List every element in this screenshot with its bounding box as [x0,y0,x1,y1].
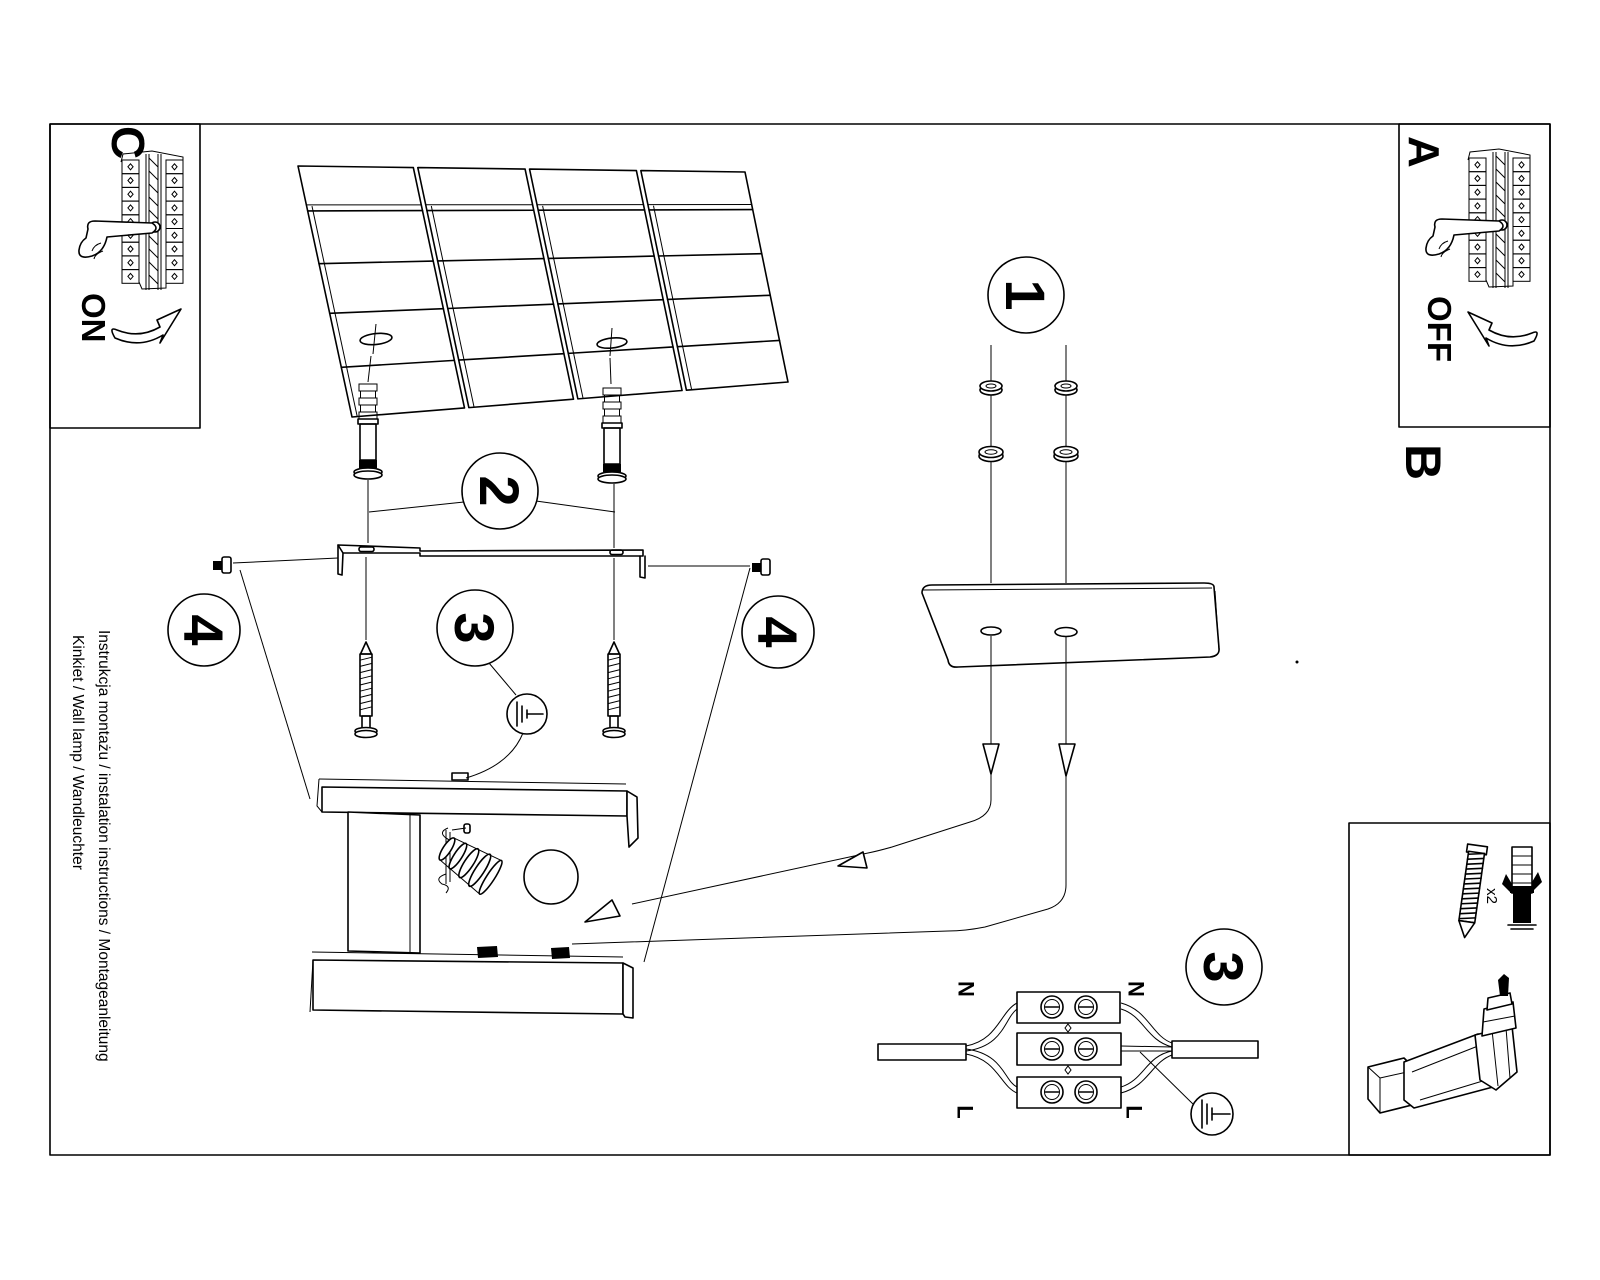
hardware-items: x2 [1455,844,1542,939]
breaker-module [166,160,183,174]
panel-a-state: OFF [1421,296,1458,362]
base-end [623,963,633,1018]
drill-icon [1368,974,1517,1113]
breaker-module [122,160,139,174]
breaker-module [122,201,139,215]
breaker-hand-icon [1426,219,1503,257]
wire-label-l: L [1121,1105,1146,1118]
curved-arrow-icon [112,309,181,343]
panel-a-label: A [1399,136,1448,168]
breaker-module [1469,268,1486,282]
arrowhead [983,744,999,774]
screw-icon [355,642,377,738]
drill-hole [360,332,393,346]
breaker-module [1469,185,1486,199]
washer-icon [1055,381,1077,395]
breaker-module [1513,254,1530,268]
washer-icon [1054,447,1078,462]
breaker-module [1513,268,1530,282]
base-bar [313,960,623,1014]
step-number: 4 [172,614,235,645]
washer-icon [980,381,1002,395]
breaker-module [1469,240,1486,254]
screw-icon [752,559,770,575]
panel-b-label: B [1395,444,1451,480]
terminal-post [551,947,570,959]
print-dot [1296,661,1299,664]
wires [572,636,1075,944]
canopy-end [627,791,638,847]
panel-c: C ON [75,126,183,343]
terminal-post [477,946,498,958]
breaker-icon [121,151,183,290]
breaker-module [122,242,139,256]
earth-tab [452,773,468,780]
earth-ground-icon [1191,1093,1233,1135]
drill-hole [597,336,628,349]
wire-label-l: L [952,1105,977,1118]
breaker-module [166,187,183,201]
breaker-module [1513,158,1530,172]
breaker-module [1513,199,1530,213]
earth-ground-icon [507,694,547,734]
wall-plug-icon [598,388,626,483]
panel-a-box [1399,124,1550,427]
caption-line-2: Kinkiet / Wall lamp / Wandleuchter [69,635,86,870]
step-4-right: 4 [644,559,814,962]
cable-left [878,1044,966,1060]
step-number: 3 [1192,951,1255,982]
wire-label-n: N [1123,981,1148,997]
breaker-module [166,229,183,243]
diamond-mark [1065,1024,1071,1032]
bulb-socket [433,830,505,896]
step-2-callout: 2 [369,453,615,529]
base-top-edge [312,952,623,957]
step-4-left: 4 [168,557,338,799]
caption-line-1: Instrukcja montażu / instalation instruc… [95,630,112,1062]
breaker-module [1513,213,1530,227]
breaker-module [122,270,139,284]
wire-label-n: N [953,981,978,997]
bracket-slot [359,547,374,552]
step-3-callout: 3 [437,590,547,780]
breaker-module [166,215,183,229]
wall-panel [641,171,788,391]
lamp-body [310,779,638,1018]
step-number: 2 [468,475,531,506]
breaker-module [166,201,183,215]
panel-a: A OFF [1399,136,1537,362]
lamp-column [348,812,420,953]
breaker-module [122,256,139,270]
step-number: 4 [746,616,809,647]
mounting-bracket [338,545,645,578]
breaker-hand-icon [79,221,156,259]
wall-plug-icon [354,384,382,479]
terminal-block [1017,1077,1121,1108]
breaker-module [1469,199,1486,213]
panel-c-state: ON [75,293,112,343]
washer-icon [979,447,1003,462]
step-number: 3 [443,612,506,643]
screw-icon [1455,844,1488,939]
bracket-slot [610,550,623,555]
screw-icon [603,642,625,738]
step-number: 1 [994,279,1057,310]
canopy-bar [322,787,627,816]
breaker-icon [1468,149,1530,288]
wall-plug-icon [1502,847,1542,929]
breaker-module [122,174,139,188]
quantity-label: x2 [1483,888,1500,904]
arrowhead [838,852,867,868]
breaker-module [1513,185,1530,199]
bulb-icon [524,850,578,904]
wall-panel [530,169,683,399]
cable-right [1172,1041,1258,1058]
screw-icon [213,557,231,573]
breaker-module [166,242,183,256]
step-1-callout: 1 [988,257,1064,333]
margin-caption: Instrukcja montażu / instalation instruc… [69,630,112,1062]
breaker-module [1513,227,1530,241]
wall-holes [360,324,628,384]
terminal-wiring: N N L L 3 [878,929,1262,1135]
arrowhead [585,900,620,922]
breaker-module [1469,172,1486,186]
terminal-block [1017,992,1120,1023]
breaker-module [1469,158,1486,172]
instruction-sheet: C ON A OFF B [0,0,1600,1280]
arrowhead [1059,744,1075,776]
wall-panel [298,166,464,417]
wall-panel [418,168,574,408]
canopy-top-edge [319,779,626,784]
wall-tiles [298,166,788,417]
terminal-block [1017,1033,1121,1065]
curved-arrow-icon [1468,312,1537,346]
diagram-canvas: C ON A OFF B [0,0,1600,1280]
fixing-stack [979,345,1078,583]
breaker-module [1513,172,1530,186]
breaker-module [1513,240,1530,254]
breaker-module [1469,254,1486,268]
breaker-module [166,270,183,284]
breaker-module [166,174,183,188]
breaker-module [122,187,139,201]
diamond-mark [1065,1066,1071,1074]
panel-c-box [50,124,200,428]
canopy-plate [922,583,1219,667]
breaker-module [166,256,183,270]
